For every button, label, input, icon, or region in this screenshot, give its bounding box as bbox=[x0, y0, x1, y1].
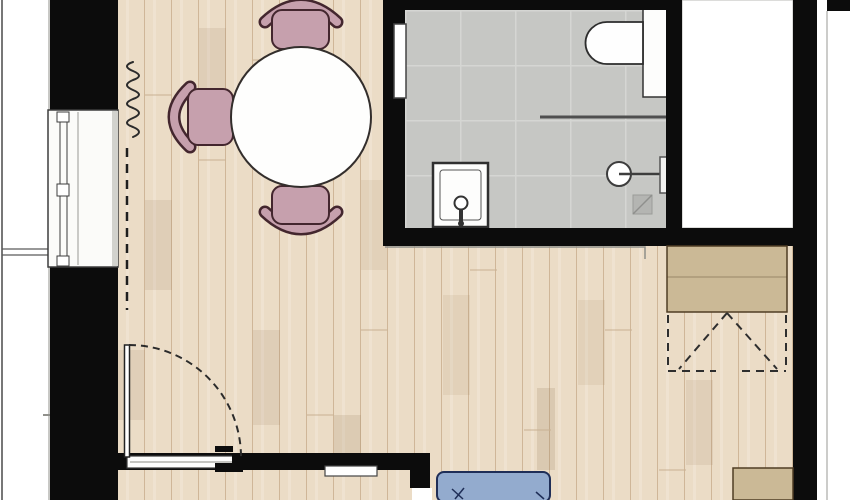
entry-door-leaf bbox=[125, 345, 130, 457]
wall-corner-top-right bbox=[827, 0, 850, 11]
dining-table bbox=[231, 47, 371, 187]
lower-wall-opening bbox=[325, 466, 377, 476]
bathroom-door-panel bbox=[394, 24, 406, 98]
wardrobe bbox=[667, 246, 787, 312]
wall-bathroom-top bbox=[383, 0, 682, 10]
plank-shade bbox=[145, 200, 172, 290]
wall-bottom-stub bbox=[410, 453, 430, 488]
window-mullion-block bbox=[57, 256, 69, 266]
window-mullion-block bbox=[57, 184, 69, 196]
plank-shade bbox=[253, 330, 280, 425]
shower-valve-base bbox=[458, 221, 464, 227]
plank-shade bbox=[118, 350, 145, 420]
wall-left-bottom bbox=[50, 267, 118, 500]
sofa bbox=[437, 472, 550, 500]
plank-shade bbox=[443, 295, 470, 395]
wall-bathroom-right bbox=[666, 10, 682, 228]
entry-door-strike-lower bbox=[215, 463, 232, 472]
toilet-cistern-panel bbox=[643, 8, 667, 97]
plank-shade bbox=[578, 300, 605, 385]
wall-stub-notch bbox=[412, 488, 432, 500]
plank-shade bbox=[686, 380, 713, 465]
entry-door-strike-upper bbox=[215, 446, 233, 452]
chair-left-seat bbox=[188, 89, 233, 145]
toilet-bowl bbox=[586, 22, 644, 64]
shower-valve bbox=[455, 197, 468, 210]
chair-bottom-seat bbox=[272, 186, 329, 224]
plank-shade bbox=[537, 388, 555, 470]
floor-plan-drawing bbox=[0, 0, 850, 500]
window-sill-shade bbox=[112, 111, 118, 266]
wall-bathroom-bottom bbox=[383, 228, 793, 246]
wall-left-top bbox=[50, 0, 118, 110]
window-mullion-block bbox=[57, 112, 69, 122]
chair-top-seat bbox=[272, 10, 329, 49]
shaft-room bbox=[682, 0, 793, 228]
wall-right bbox=[793, 0, 817, 500]
cabinet-bottom-right bbox=[733, 468, 793, 500]
floor-plan bbox=[0, 0, 850, 500]
